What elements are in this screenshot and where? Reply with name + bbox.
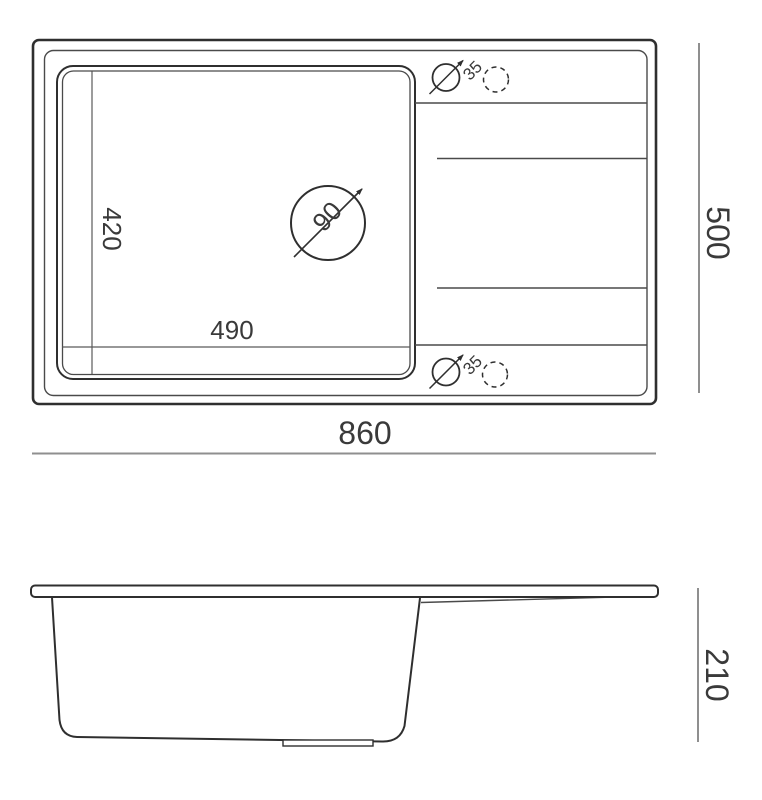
bowl-depth-label: 420	[97, 207, 127, 250]
overall-depth-label: 500	[700, 206, 736, 259]
drain-outlet-stub	[283, 740, 373, 746]
side-view	[31, 586, 658, 747]
sink-technical-drawing: 90 35 35 420 490 500 860 210	[0, 0, 762, 800]
bowl-profile	[52, 598, 420, 742]
overall-width-label: 860	[338, 415, 391, 451]
drawing-svg: 90 35 35 420 490 500 860 210	[0, 0, 762, 800]
bowl-width-label: 490	[210, 315, 253, 345]
rim-profile	[31, 586, 658, 598]
top-view: 90 35 35 420 490	[33, 40, 656, 404]
overall-height-label: 210	[699, 648, 735, 701]
